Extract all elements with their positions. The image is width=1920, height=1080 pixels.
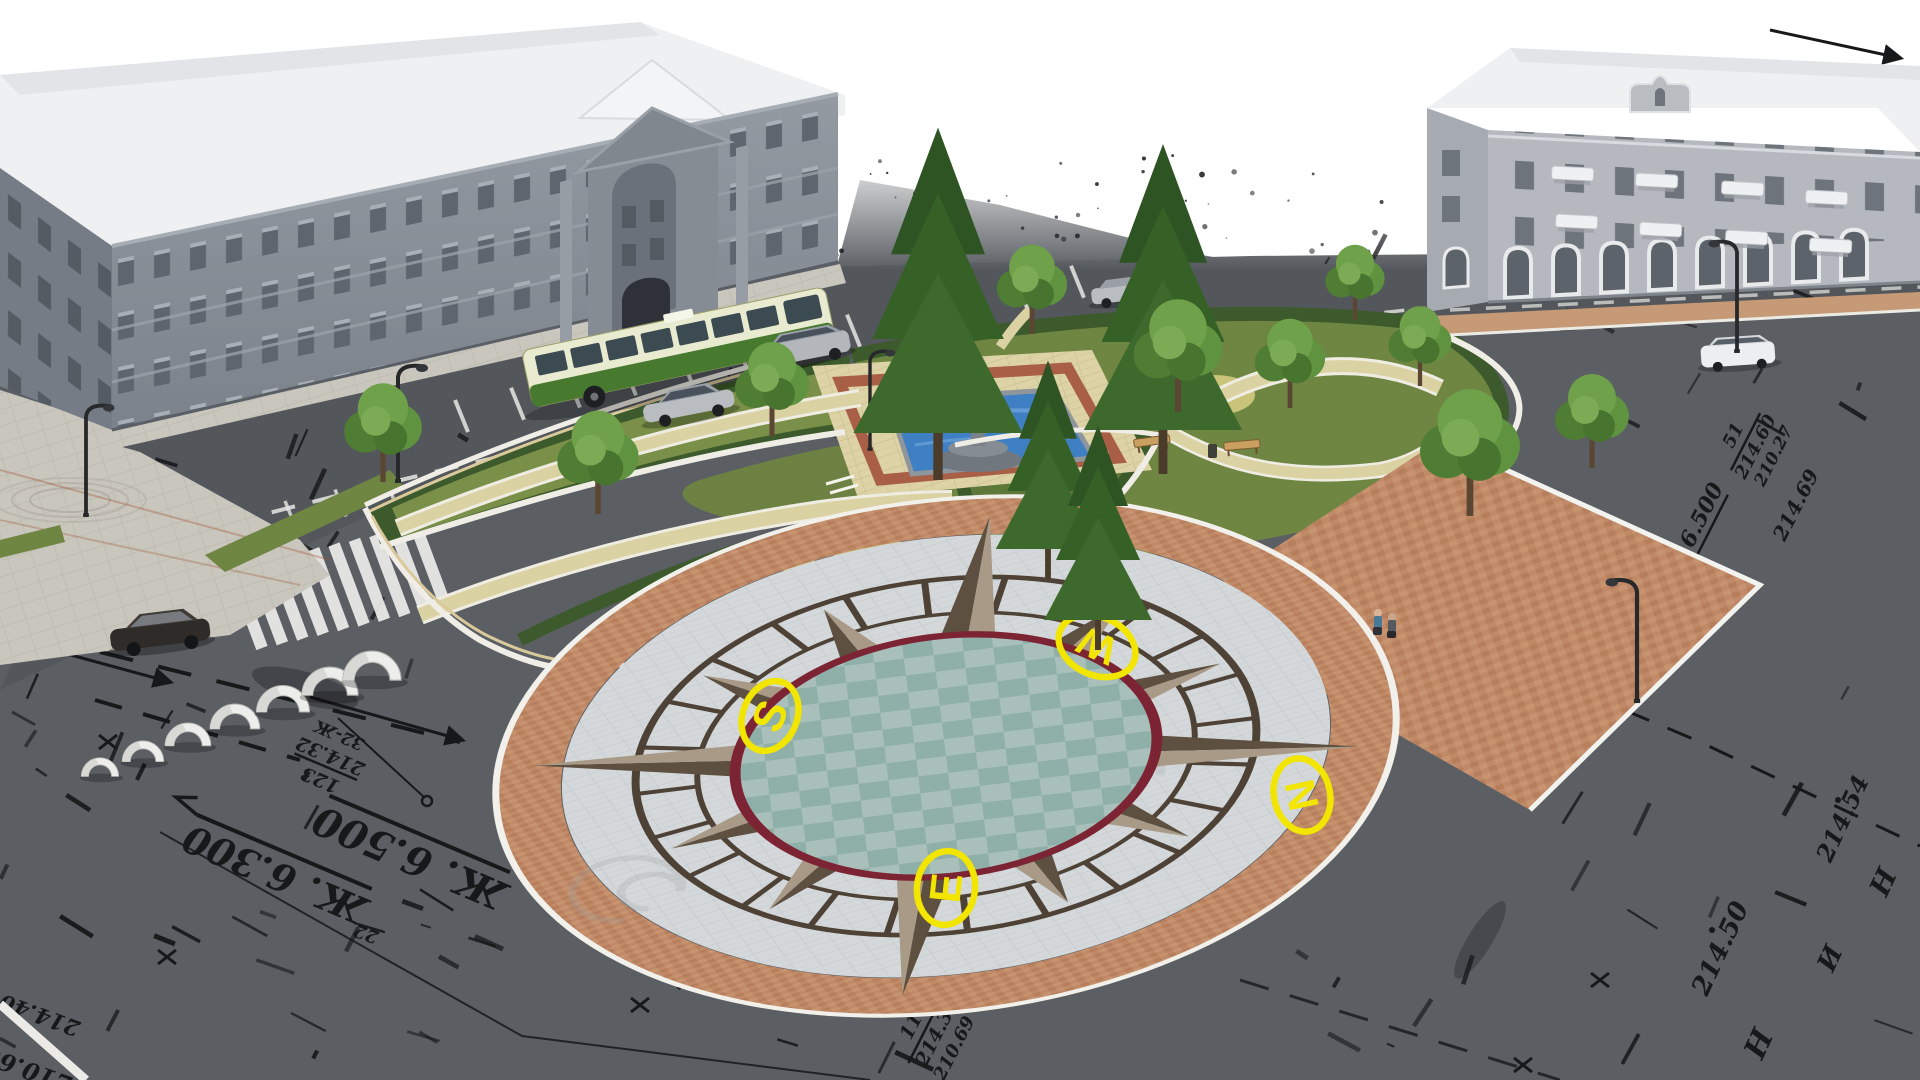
map-speckle <box>1055 215 1058 218</box>
map-speckle <box>1231 169 1237 175</box>
map-speckle <box>1309 248 1315 254</box>
map-speckle <box>1061 237 1066 242</box>
map-speckle <box>1006 195 1008 197</box>
balcony <box>1635 173 1678 188</box>
map-speckle <box>1171 154 1174 157</box>
map-speckle <box>1287 199 1290 202</box>
map-speckle <box>1142 157 1146 161</box>
arched-window <box>1505 248 1531 298</box>
map-speckle <box>1076 213 1080 217</box>
map-speckle <box>1141 170 1144 173</box>
map-speckle <box>1097 207 1099 209</box>
map-speckle <box>1250 191 1255 196</box>
map-speckle <box>1075 233 1080 238</box>
arched-window <box>1553 245 1579 295</box>
arched-window <box>1649 240 1675 290</box>
balcony <box>1721 181 1764 196</box>
map-speckle <box>878 159 882 163</box>
city-square-3d-render: Ж. 6.500 Ж. 6.300 Ж. 6.500 123 214.32 32… <box>0 0 1920 1080</box>
map-speckle <box>870 173 872 175</box>
compass-letter-e: E <box>921 871 973 905</box>
map-speckle <box>1199 172 1205 178</box>
map-speckle <box>886 172 888 174</box>
balcony <box>1639 222 1682 237</box>
balcony <box>1809 238 1852 253</box>
map-speckle <box>1185 200 1187 202</box>
pilaster <box>736 145 748 322</box>
map-speckle <box>839 248 844 253</box>
map-speckle <box>1380 200 1384 204</box>
trash-bin <box>1208 444 1217 458</box>
map-speckle <box>1095 182 1099 186</box>
survey-dash <box>1858 383 1861 391</box>
map-speckle <box>1202 224 1207 229</box>
render-canvas: Ж. 6.500 Ж. 6.300 Ж. 6.500 123 214.32 32… <box>0 0 1920 1080</box>
map-speckle <box>1208 203 1210 205</box>
map-speckle <box>1055 234 1060 239</box>
balcony <box>1551 166 1594 181</box>
map-speckle <box>895 197 897 199</box>
balcony <box>1555 214 1598 229</box>
map-speckle <box>1312 173 1315 176</box>
map-speckle <box>1372 230 1378 236</box>
map-speckle <box>1059 162 1062 165</box>
building-right <box>1427 48 1920 312</box>
map-speckle <box>987 199 990 202</box>
map-speckle <box>1226 237 1228 239</box>
map-speckle <box>1321 243 1324 246</box>
arched-window <box>1601 243 1627 293</box>
balcony <box>1805 190 1848 205</box>
map-speckle <box>1021 226 1024 229</box>
